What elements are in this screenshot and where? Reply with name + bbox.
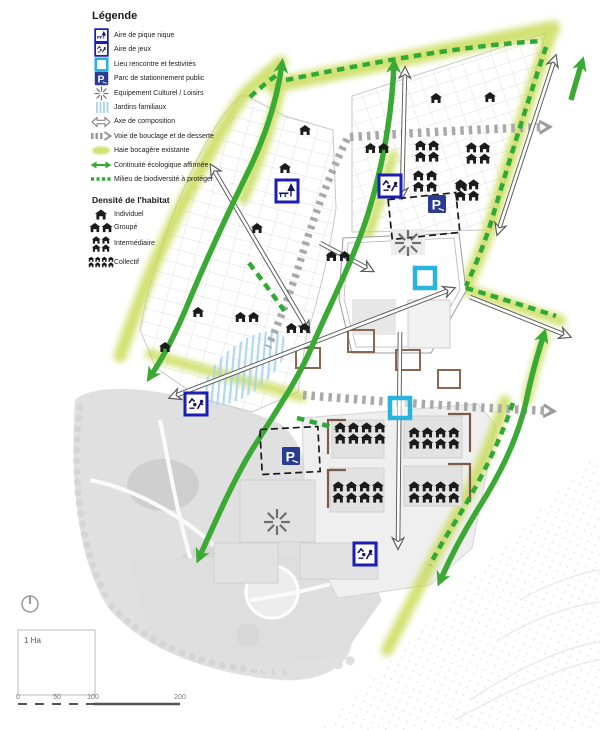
house-quad-icon: [88, 236, 114, 252]
density-title: Densité de l'habitat: [92, 195, 256, 205]
parking-marker: [428, 195, 446, 213]
existing-hedge-icon: [88, 144, 114, 157]
hectare-reference: 1 Ha: [18, 630, 95, 695]
scale-tick-50: 50: [53, 694, 61, 701]
legend-title: Légende: [92, 10, 256, 22]
playground-icon: [88, 42, 114, 57]
density-item-individual: Individuel: [88, 209, 256, 220]
legend-item-gardens: Jardins familiaux: [88, 102, 256, 113]
legend: Légende Aire de pique nique Aire de jeux…: [88, 10, 256, 273]
jeux-marker: [354, 543, 376, 565]
density-item-intermediate: Intermédiaire: [88, 236, 256, 252]
legend-item-hedge: Haie bocagère existante: [88, 145, 256, 156]
composition-axis-icon: [88, 116, 114, 128]
legend-item-culture: Equipement Culturel / Loisirs: [88, 88, 256, 99]
legend-item-meeting: Lieu rencontre et festivités: [88, 59, 256, 70]
house-single-icon: [88, 209, 114, 220]
legend-item-parking: Parc de stationnement public: [88, 73, 256, 84]
picnic-area-icon: [88, 28, 114, 43]
meet-marker: [390, 398, 410, 418]
density-item-collective: Collectif: [88, 254, 256, 270]
parking-marker: [282, 447, 300, 465]
cultural-facility-icon: [88, 86, 114, 101]
picnic-marker: [276, 180, 298, 202]
jeux-marker: [185, 393, 207, 415]
house-octet-icon: [88, 254, 114, 270]
scale-tick-0: 0: [16, 694, 20, 701]
density-section: Densité de l'habitat Individuel Groupé I…: [88, 195, 256, 271]
scale-tick-100: 100: [87, 694, 99, 701]
legend-item-picnic: Aire de pique nique: [88, 30, 256, 41]
legend-item-playground: Aire de jeux: [88, 44, 256, 55]
meeting-place-icon: [88, 57, 114, 72]
ecological-continuity-icon: [88, 159, 114, 171]
jeux-marker: [379, 175, 401, 197]
house-pair-icon: [88, 222, 114, 233]
hectare-label: 1 Ha: [24, 636, 41, 645]
legend-item-continuity: Continuité écologique affirmée: [88, 160, 256, 171]
family-gardens-icon: [88, 101, 114, 114]
legend-item-biodiversity: Milieu de biodiversité à protéger: [88, 174, 256, 185]
density-item-grouped: Groupé: [88, 222, 256, 233]
loop-road-icon: [88, 130, 114, 142]
legend-item-loop-road: Voie de bouclage et de desserte: [88, 131, 256, 142]
biodiversity-icon: [88, 173, 114, 185]
scale-tick-200: 200: [174, 694, 186, 701]
meet-marker: [415, 268, 435, 288]
public-parking-icon: [88, 71, 114, 86]
legend-item-axis: Axe de composition: [88, 116, 256, 127]
masterplan-page: P: [0, 0, 600, 730]
